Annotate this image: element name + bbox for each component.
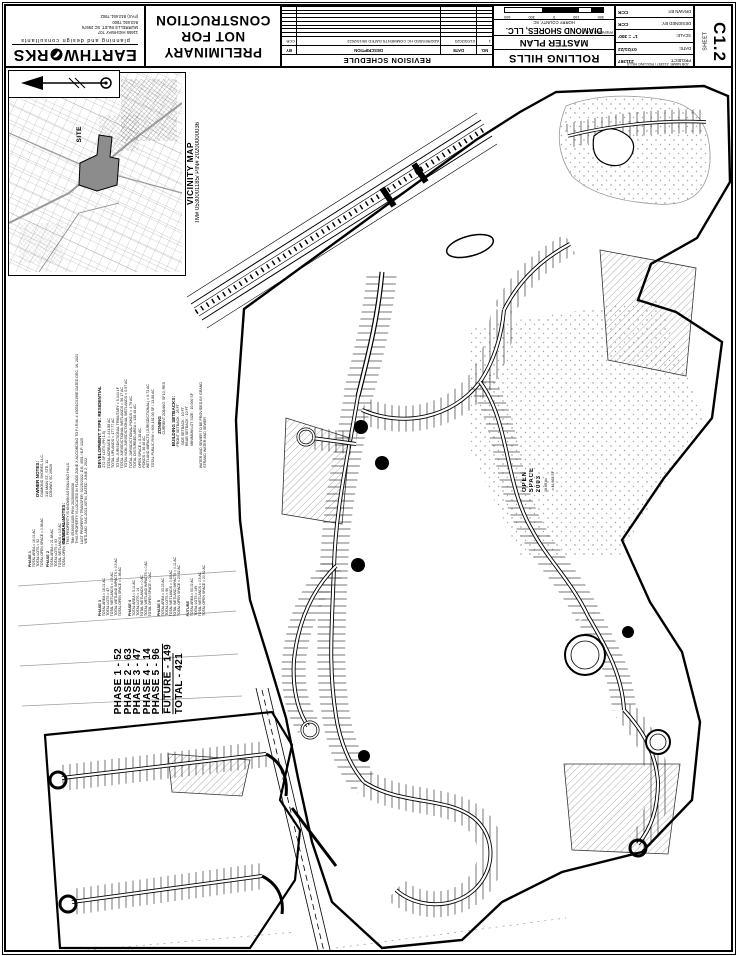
title-block-inner: C1.2 SHEET JOB NAME: 211397 / ROLLING HI…	[6, 6, 731, 66]
project-title-cell: ROLLING HILLS MASTER PLAN PREPARED FOR: …	[494, 6, 616, 66]
revision-col-date: DATE	[440, 46, 476, 54]
general-note-line: THIS PROPERTY IS LOCATED IN FLOOD ZONE X…	[75, 354, 79, 544]
project-name: ROLLING HILLS	[494, 49, 614, 66]
graphic-scale: 3001500300600	[494, 6, 614, 19]
globe-icon	[50, 48, 63, 61]
open-space-line: SPACE	[529, 467, 536, 492]
list-item: TOTAL - 421	[173, 653, 185, 714]
site-label: SITE	[76, 126, 83, 142]
logo-text-left: EARTHW	[64, 46, 137, 63]
revision-no: 1	[476, 37, 492, 45]
revision-empty-row	[282, 10, 492, 14]
open-space-area: ±14,662 SF	[550, 471, 557, 492]
logo-text-right: RKS	[13, 46, 48, 63]
list-item: TOTAL OPEN SPACE = 20.52 AC	[202, 565, 206, 616]
north-arrow-icon	[9, 71, 117, 95]
vicinity-map-drawing	[9, 73, 182, 272]
stamp-line-2: NOT FOR	[146, 28, 280, 44]
revision-row-1: 1 01/03/2023 ADDRESSED HC COMMENTS DATED…	[282, 36, 492, 45]
title-block: C1.2 SHEET JOB NAME: 211397 / ROLLING HI…	[6, 6, 731, 68]
revision-schedule: REVISION SCHEDULE NO. DATE DESCRIPTION B…	[282, 6, 494, 66]
list-item: TOTAL OPEN SPACE = 4.51 AC	[62, 518, 66, 567]
sheet-number-cell: C1.2 SHEET	[695, 6, 731, 66]
development-note-line: TOTAL UPLANDS = 177.77 AC	[111, 418, 115, 468]
scale-label: SCALE:	[676, 34, 691, 39]
revision-empty-row	[282, 6, 492, 10]
open-space-line: OPEN	[522, 471, 529, 492]
drawn-by-value: CCR	[618, 9, 628, 14]
preliminary-stamp: PRELIMINARY NOT FOR CONSTRUCTION	[146, 6, 282, 66]
vicinity-labels: VICINITY MAP TM# 0530001185/ PIN# 202000…	[185, 72, 201, 274]
date-label: DATE:	[679, 46, 691, 51]
zoning-line: CURRENT ZONING: SF10, RES	[162, 382, 166, 434]
revision-title: REVISION SCHEDULE	[282, 54, 492, 66]
logo-wordmark: EARTHW RKS	[12, 46, 138, 63]
zoning-notes: ZONING CURRENT ZONING: SF10, RES	[158, 372, 167, 434]
fax: (FAX) 843.651.7902	[12, 14, 138, 19]
sheet-title: MASTER PLAN	[494, 35, 614, 49]
logo-tagline: planning and design consultants	[12, 37, 138, 45]
north-arrow	[8, 70, 120, 98]
list-item: PHASE 5 - 96	[152, 648, 162, 714]
phase-summary-list: PHASE 1 - 52PHASE 2 - 63PHASE 3 - 47PHAS…	[114, 602, 184, 714]
stamp-line-1: PRELIMINARY	[146, 44, 280, 60]
general-note-line: WETLAND: SAC-2021-00764, DATED: JUNE 2, …	[84, 458, 88, 544]
development-note-line: TOTAL PUBLIC R/W = 604,181.00 SF / 13.88…	[151, 389, 155, 468]
list-item: 0	[553, 15, 555, 19]
earthworks-logo-cell: EARTHW RKS planning and design consultan…	[6, 6, 146, 66]
open-space-label: OPEN SPACE 2003 16.65 Ac ±14,662 SF	[522, 428, 557, 492]
development-notes: DEVELOPMENT TYPE: RESIDENTIAL 272 SF LOT…	[98, 366, 155, 468]
job-name: JOB NAME: 211397 / ROLLING HILLS	[627, 62, 689, 66]
drawing-sheet: { "title_block": { "logo": { "name_left"…	[0, 0, 737, 956]
vicinity-title: VICINITY MAP	[185, 142, 195, 205]
info-row-designed: DESIGNED BY: CCR	[616, 17, 693, 29]
list-item: TOTAL OPEN SPACE = 0.98 AC	[40, 518, 44, 567]
revision-col-by: BY	[282, 46, 296, 54]
setback-line: MINIMUM LOT SIZE : 10,000 SF	[190, 393, 194, 446]
railroad-ties	[196, 128, 486, 312]
development-note-line: TOTAL DISTURBED AREA = 138.48 AC	[133, 404, 137, 468]
phone: 843.651.7900	[12, 19, 138, 24]
revision-empty-row	[282, 29, 492, 33]
graphic-scale-numbers: 3001500300600	[504, 15, 604, 19]
utility-notes: WATER AND SEWER TO BE PROVIDED BY GRAND …	[199, 372, 208, 468]
revision-empty-row	[282, 17, 492, 21]
client-block: PREPARED FOR: DIAMOND SHORES, LLC. HORRY…	[494, 19, 614, 35]
revision-description: ADDRESSED HC COMMENTS DATED 09/19/2022	[296, 37, 440, 45]
designed-by-label: DESIGNED BY:	[661, 21, 691, 26]
phase-2-breakdown: PHASE 2TOTAL AREA = 21.88 ACTOTAL LOTS =…	[46, 462, 66, 567]
date-value: 07/21/22	[618, 46, 637, 51]
project-info-cell: JOB NAME: 211397 / ROLLING HILLS PROJECT…	[616, 6, 695, 66]
graphic-scale-bar	[504, 7, 604, 13]
sheet-number: C1.2	[709, 22, 729, 62]
sheet-label: SHEET	[703, 31, 709, 50]
revision-date: 01/03/2023	[440, 37, 476, 45]
site-callout: SITE	[76, 112, 83, 142]
scale-value: 1" = 300'	[618, 34, 638, 39]
list-item: FUTURE - 149	[162, 644, 173, 714]
prepared-for-label: PREPARED FOR:	[585, 30, 613, 34]
revision-by: CCR	[282, 37, 296, 45]
revision-empty-row	[282, 21, 492, 25]
utility-line: STRAND WATER AND SEWER	[203, 417, 207, 468]
vicinity-subtitle: TM# 0530001185/ PIN# 20200000036	[195, 122, 201, 224]
open-space-area: 16.65 Ac	[543, 478, 550, 492]
info-row-date: DATE: 07/21/22	[616, 42, 693, 54]
designed-by-value: CCR	[618, 21, 628, 26]
revision-empty-row	[282, 14, 492, 18]
list-item: 150	[573, 15, 579, 19]
revision-header-row: NO. DATE DESCRIPTION BY	[282, 45, 492, 54]
address-line-1: 11655 HIGHWAY 707	[12, 30, 138, 35]
info-row-drawn: DRAWN BY: CCR	[616, 6, 693, 17]
drawn-by-label: DRAWN BY:	[668, 9, 691, 14]
setback-line: REAR SETBACK : 10 FT	[185, 406, 189, 446]
future-breakdown: FUTURETOTAL AREA = 53.02 ACTOTAL LOTS = …	[186, 528, 206, 616]
address-line-2: MURRELLS INLET, SC 29576	[12, 25, 138, 30]
list-item: 600	[504, 15, 510, 19]
stamp-line-3: CONSTRUCTION	[146, 12, 280, 28]
revision-col-no: NO.	[476, 46, 492, 54]
logo-address: 11655 HIGHWAY 707 MURRELLS INLET, SC 295…	[12, 14, 138, 35]
revision-col-desc: DESCRIPTION	[296, 46, 440, 54]
revision-empty-row	[282, 25, 492, 29]
list-item: 300	[528, 15, 534, 19]
revision-empty-row	[282, 32, 492, 36]
highway-corridor	[187, 113, 497, 328]
setback-notes: BUILDING SETBACKS: FRONT SETBACK : 25 FT…	[172, 372, 194, 446]
open-space-line: 2003	[536, 475, 543, 492]
list-item: 300	[598, 15, 604, 19]
info-row-scale: SCALE: 1" = 300'	[616, 29, 693, 41]
phase-1-breakdown: PHASE 1TOTAL AREA = 16.01 ACTOTAL LOTS =…	[28, 462, 44, 567]
vicinity-map	[8, 72, 186, 276]
